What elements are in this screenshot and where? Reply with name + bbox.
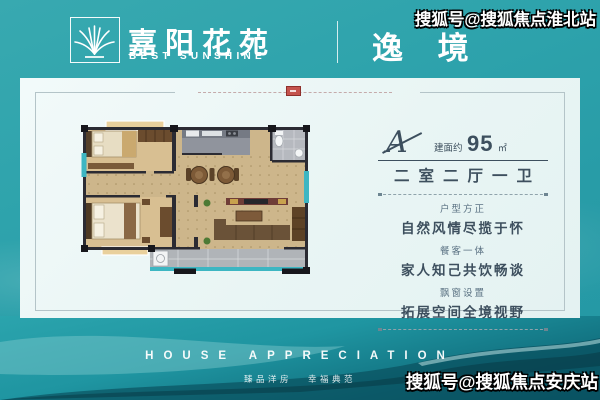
unit-card: A 建面约 95 ㎡ 二室二厅一卫 户型方正 自然风情尽揽于怀 餐客一体 家人知… — [20, 78, 580, 318]
feature-detail: 拓展空间全境视野 — [378, 301, 548, 321]
dashed-divider — [378, 329, 548, 330]
area-unit: ㎡ — [498, 143, 507, 153]
balcony — [150, 249, 306, 274]
border-segment — [35, 92, 175, 93]
floorplan-image — [78, 119, 313, 287]
area-underline — [378, 160, 548, 161]
header-divider — [337, 21, 338, 63]
feature-caption: 飘窗设置 — [378, 285, 548, 299]
slogan-right: 幸福典范 — [308, 374, 356, 384]
footer-title: HOUSE APPRECIATION — [90, 350, 510, 362]
unit-type-letter: A — [386, 128, 408, 158]
feature-caption: 餐客一体 — [378, 243, 548, 257]
slogan-left: 臻品洋房 — [244, 374, 292, 384]
floorplan — [78, 119, 313, 287]
plant-logo-icon — [71, 18, 118, 61]
feature-detail: 家人知己共饮畅谈 — [378, 259, 548, 279]
room-bedroom-bottom — [86, 197, 172, 255]
seal-icon — [286, 86, 301, 96]
unit-layout: 二室二厅一卫 — [378, 164, 548, 186]
brand-logo — [70, 17, 120, 63]
footer-slogan: 臻品洋房幸福典范 — [90, 373, 510, 385]
feature-caption: 户型方正 — [378, 201, 548, 215]
area-label: 建面约 — [434, 143, 463, 154]
room-bathroom — [272, 129, 306, 161]
border-segment — [420, 92, 565, 93]
dining-area — [186, 167, 239, 184]
feature-detail: 自然风情尽揽于怀 — [378, 217, 548, 237]
brand-subtitle: BEST SUNSHINE — [129, 51, 266, 62]
dashed-divider — [378, 194, 548, 195]
area-value: 95 — [467, 131, 493, 156]
unit-info: A 建面约 95 ㎡ 二室二厅一卫 户型方正 自然风情尽揽于怀 餐客一体 家人知… — [378, 128, 548, 330]
room-kitchen — [182, 129, 250, 155]
watermark-top: 搜狐号@搜狐焦点淮北站 — [415, 6, 596, 30]
area-line: A 建面约 95 ㎡ — [378, 128, 548, 161]
